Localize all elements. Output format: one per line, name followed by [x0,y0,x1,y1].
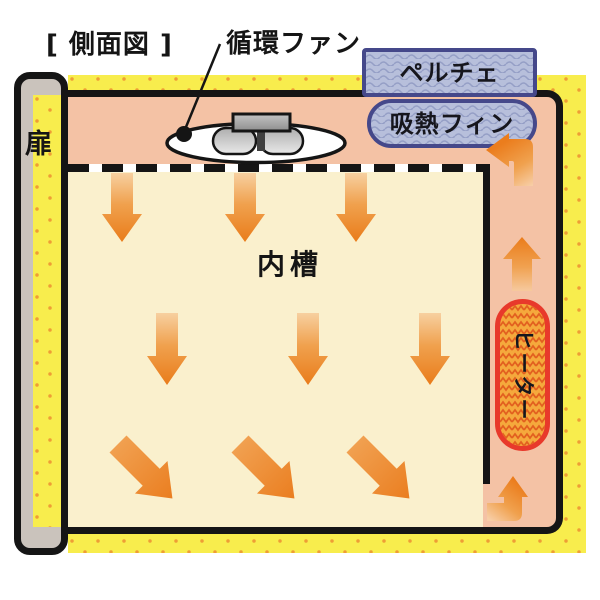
inner-tank [68,164,483,527]
heat-absorption-fin-box: 吸熱フィン [367,99,537,148]
heater-label: ヒーター [512,329,533,421]
heater: ヒーター [495,299,550,451]
peltier-label: ペルチェ [400,61,500,85]
circulation-fan-label: 循環ファン [226,30,361,60]
door-label: 扉 [25,129,52,160]
fin-label: 吸熱フィン [390,112,515,136]
inner-tank-right-wall [483,164,490,484]
peltier-box: ペルチェ [362,48,537,97]
side-view-label: [ 側面図 ] [46,31,173,61]
inner-tank-dashed-top [68,164,490,172]
diagram-canvas: ヒーター ペルチェ 吸熱フィン [0,0,600,600]
inner-tank-label: 内槽 [257,249,323,281]
